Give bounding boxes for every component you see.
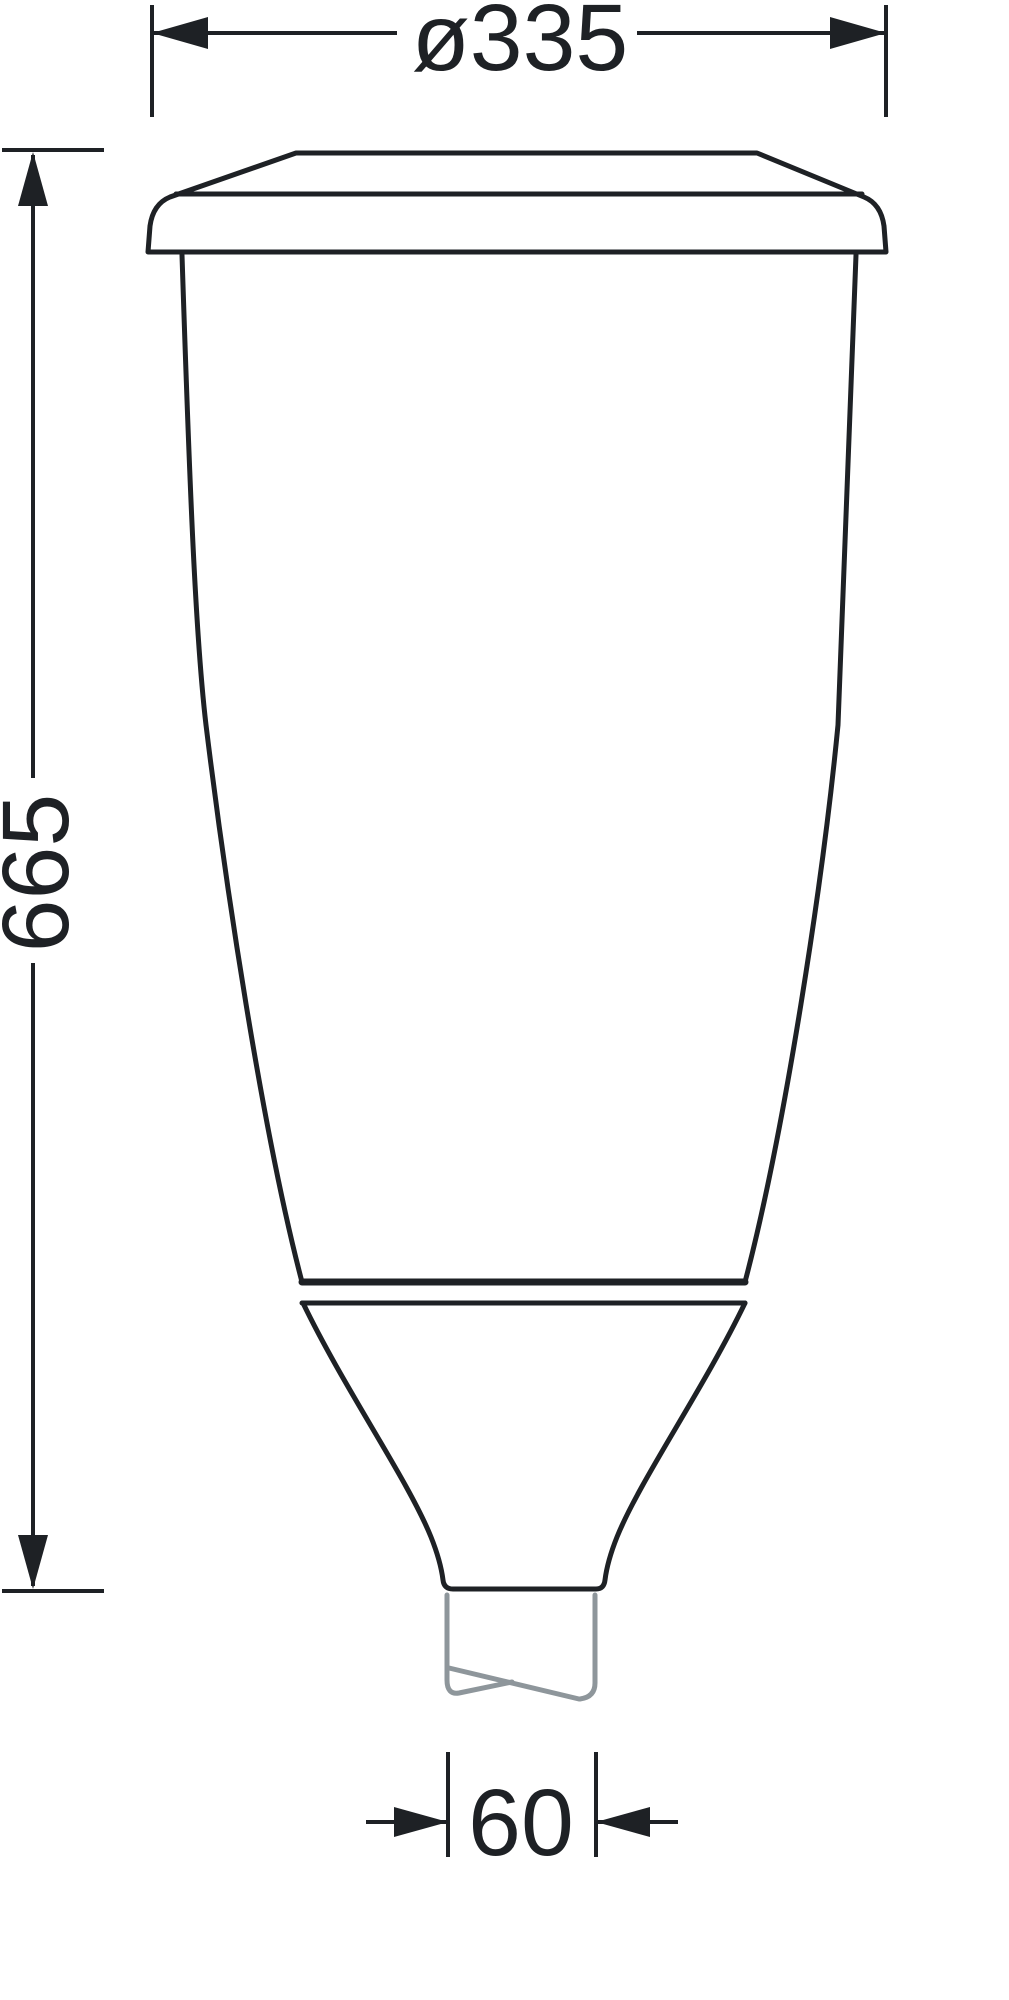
spigot-break-line <box>449 1668 579 1699</box>
spigot-label: 60 <box>468 1770 574 1876</box>
drawing-canvas: ø335 665 <box>0 0 1009 2000</box>
arrowhead-left-icon <box>152 17 208 49</box>
body-left-edge <box>182 255 302 1282</box>
spigot-right-edge <box>580 1595 595 1699</box>
arrowhead-right-icon <box>394 1807 448 1837</box>
funnel-outline <box>303 1303 745 1589</box>
height-label: 665 <box>0 794 89 953</box>
arrowhead-right-icon <box>830 17 886 49</box>
body-right-edge <box>745 255 856 1282</box>
technical-drawing: ø335 665 <box>0 0 1009 2000</box>
arrowhead-left-icon <box>596 1807 650 1837</box>
luminaire-outline <box>148 153 886 1589</box>
cap-outline <box>148 153 886 252</box>
dimension-height: 665 <box>0 150 104 1591</box>
diameter-label: ø335 <box>412 0 629 91</box>
dimension-spigot: 60 <box>366 1752 678 1876</box>
arrowhead-up-icon <box>18 152 48 206</box>
arrowhead-down-icon <box>18 1535 48 1589</box>
pole-spigot <box>447 1595 595 1699</box>
dimension-diameter: ø335 <box>152 0 886 117</box>
